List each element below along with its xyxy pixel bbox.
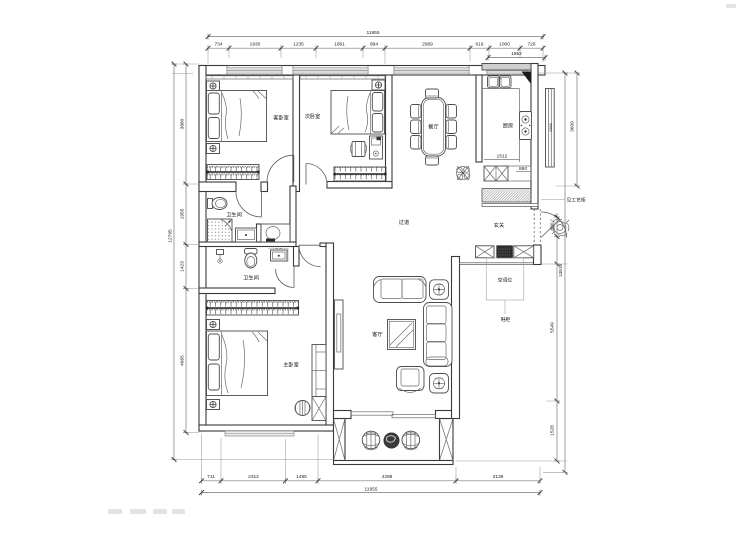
svg-text:鞋柜: 鞋柜 xyxy=(501,316,511,323)
svg-text:4299: 4299 xyxy=(382,474,393,480)
svg-text:厨房: 厨房 xyxy=(503,122,513,130)
svg-text:空调位: 空调位 xyxy=(498,277,513,284)
svg-text:1495: 1495 xyxy=(296,474,307,480)
svg-text:客厅: 客厅 xyxy=(372,330,382,338)
svg-text:12795: 12795 xyxy=(167,229,173,243)
svg-text:880: 880 xyxy=(550,222,556,230)
svg-text:1862: 1862 xyxy=(511,51,522,57)
svg-text:餐厅: 餐厅 xyxy=(428,123,438,131)
svg-text:5549: 5549 xyxy=(550,322,556,333)
svg-text:11955: 11955 xyxy=(365,486,378,492)
svg-text:616: 616 xyxy=(475,42,483,48)
svg-text:次卧室: 次卧室 xyxy=(305,112,321,120)
svg-text:3609: 3609 xyxy=(570,121,576,132)
svg-text:2969: 2969 xyxy=(422,42,433,48)
svg-text:主卧室: 主卧室 xyxy=(283,361,299,369)
svg-text:1955: 1955 xyxy=(179,208,185,219)
svg-text:4665: 4665 xyxy=(179,355,185,366)
svg-text:884: 884 xyxy=(370,42,378,48)
svg-text:1930: 1930 xyxy=(250,42,261,48)
svg-text:卫生间: 卫生间 xyxy=(226,211,242,219)
svg-text:726: 726 xyxy=(527,42,535,48)
svg-text:711: 711 xyxy=(207,474,215,480)
svg-text:11955: 11955 xyxy=(367,30,380,36)
svg-text:见工艺柜: 见工艺柜 xyxy=(567,197,586,204)
svg-text:过道: 过道 xyxy=(399,218,409,226)
svg-text:1512: 1512 xyxy=(497,154,508,160)
svg-text:玄关: 玄关 xyxy=(494,221,504,229)
svg-text:1000: 1000 xyxy=(499,42,510,48)
svg-text:客卧室: 客卧室 xyxy=(273,114,289,122)
svg-text:3880: 3880 xyxy=(179,118,185,129)
svg-text:1528: 1528 xyxy=(550,425,556,436)
svg-text:卫生间: 卫生间 xyxy=(243,274,259,282)
svg-text:1235: 1235 xyxy=(293,42,304,48)
svg-text:1423: 1423 xyxy=(179,261,185,272)
svg-text:3139: 3139 xyxy=(493,474,504,480)
svg-text:1861: 1861 xyxy=(334,42,345,48)
svg-text:860: 860 xyxy=(519,166,527,172)
svg-text:2312: 2312 xyxy=(248,474,259,480)
svg-text:2686: 2686 xyxy=(549,123,553,131)
svg-text:734: 734 xyxy=(214,42,222,48)
